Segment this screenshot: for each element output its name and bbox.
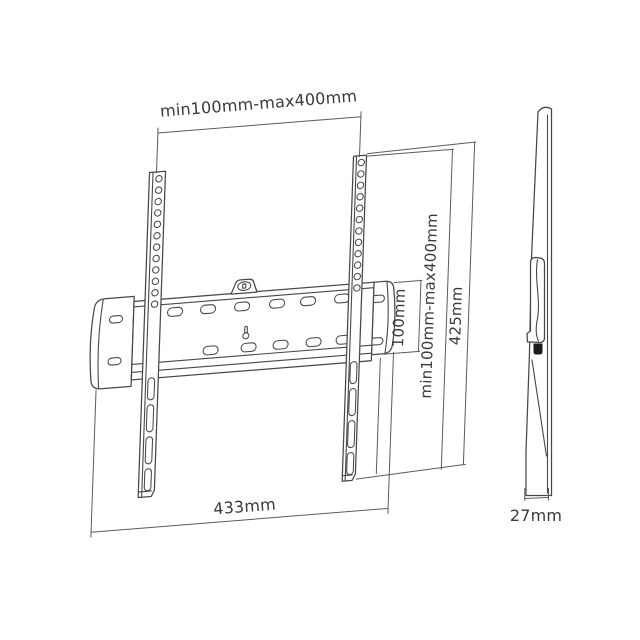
plate-cap-slot	[108, 357, 121, 365]
wall-plate-left-cap	[89, 296, 134, 389]
dim-label-profile-depth: 27mm	[510, 506, 562, 525]
side-view	[525, 107, 552, 500]
side-hook	[534, 344, 543, 355]
dim-label-plate-width: 433mm	[213, 495, 277, 519]
dim-label-top-span: min100mm-max400mm	[159, 86, 358, 120]
dim-label-rail-height: 425mm	[446, 286, 466, 345]
dim-label-vertical-span: min100mm-max400mm	[417, 213, 441, 399]
level-indicator	[231, 279, 257, 295]
plate-cap-slot	[109, 315, 122, 323]
diagram-svg: min100mm-max400mm 100mm min100mm-max400m…	[0, 0, 640, 640]
dim-label-plate-height: 100mm	[389, 288, 409, 347]
wall-mount-dimension-diagram: min100mm-max400mm 100mm min100mm-max400m…	[0, 0, 640, 640]
